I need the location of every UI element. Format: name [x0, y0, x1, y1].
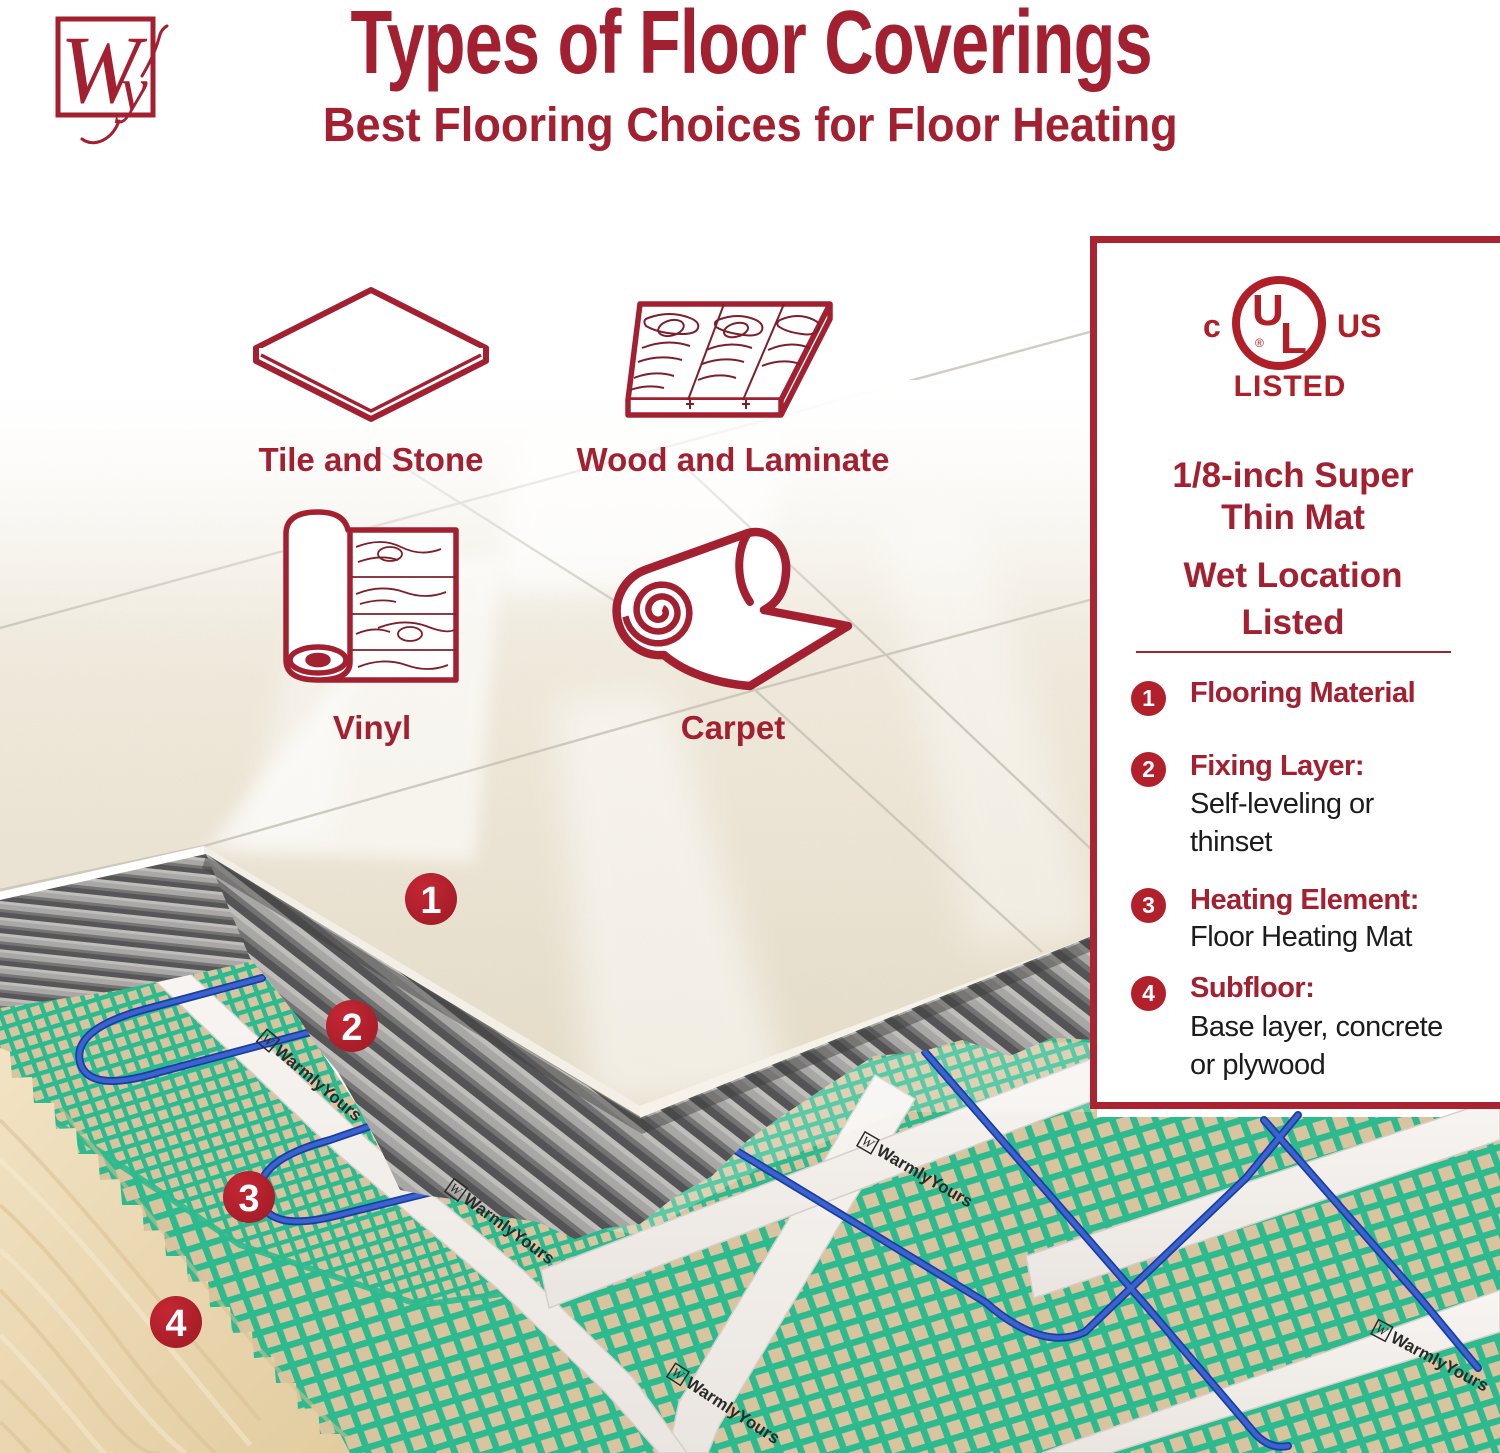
svg-text:y: y [114, 56, 148, 124]
svg-text:US: US [1337, 308, 1381, 344]
svg-text:c: c [1203, 308, 1221, 344]
svg-text:1: 1 [420, 880, 441, 922]
svg-text:U: U [1252, 286, 1284, 335]
svg-text:L: L [1280, 314, 1307, 363]
svg-text:®: ® [1255, 336, 1264, 350]
svg-text:2: 2 [341, 1007, 362, 1049]
svg-text:4: 4 [165, 1303, 186, 1345]
svg-text:3: 3 [238, 1178, 259, 1220]
